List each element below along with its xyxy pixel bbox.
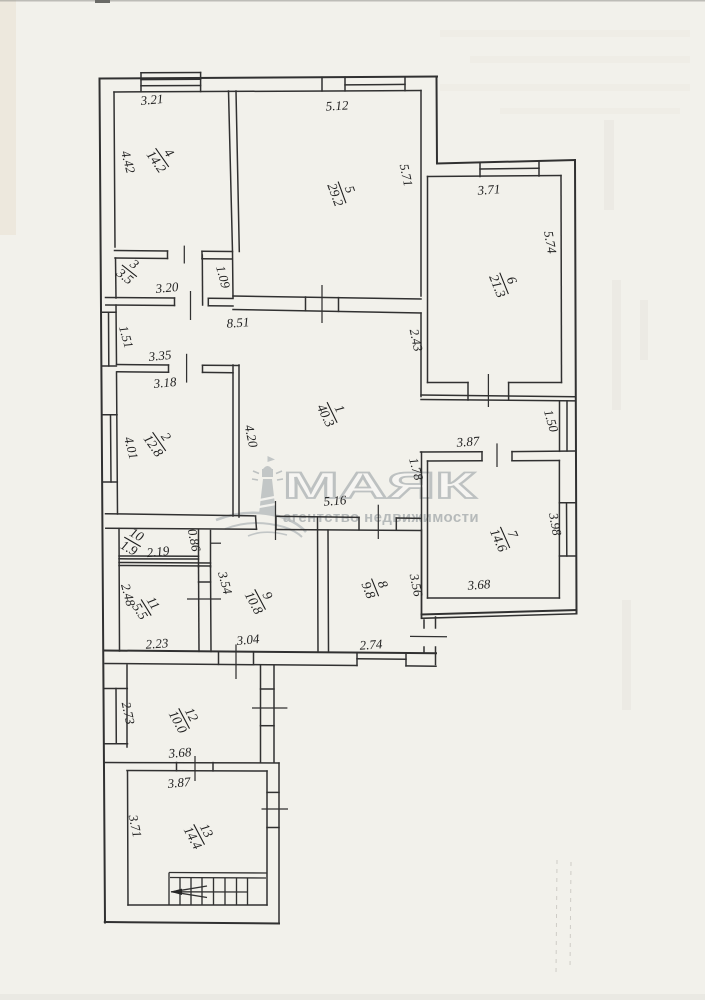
svg-text:агентство недвижимости: агентство недвижимости: [283, 509, 479, 526]
svg-text:2.74: 2.74: [359, 636, 383, 653]
svg-text:5.16: 5.16: [323, 492, 347, 509]
svg-text:3.68: 3.68: [167, 744, 192, 761]
svg-text:8.51: 8.51: [226, 314, 250, 331]
svg-text:3.35: 3.35: [147, 347, 172, 364]
svg-text:3.04: 3.04: [235, 631, 260, 648]
svg-text:2.19: 2.19: [146, 543, 171, 560]
svg-text:3.68: 3.68: [466, 576, 491, 593]
svg-text:2.23: 2.23: [145, 635, 169, 652]
svg-text:МАЯК: МАЯК: [283, 465, 477, 506]
svg-text:3.21: 3.21: [139, 91, 164, 108]
svg-text:5.12: 5.12: [325, 97, 349, 113]
svg-text:3.18: 3.18: [152, 374, 177, 391]
svg-text:3.87: 3.87: [166, 774, 191, 791]
svg-text:3.71: 3.71: [476, 181, 501, 198]
svg-text:3.20: 3.20: [154, 279, 179, 296]
svg-text:3.87: 3.87: [455, 433, 480, 450]
